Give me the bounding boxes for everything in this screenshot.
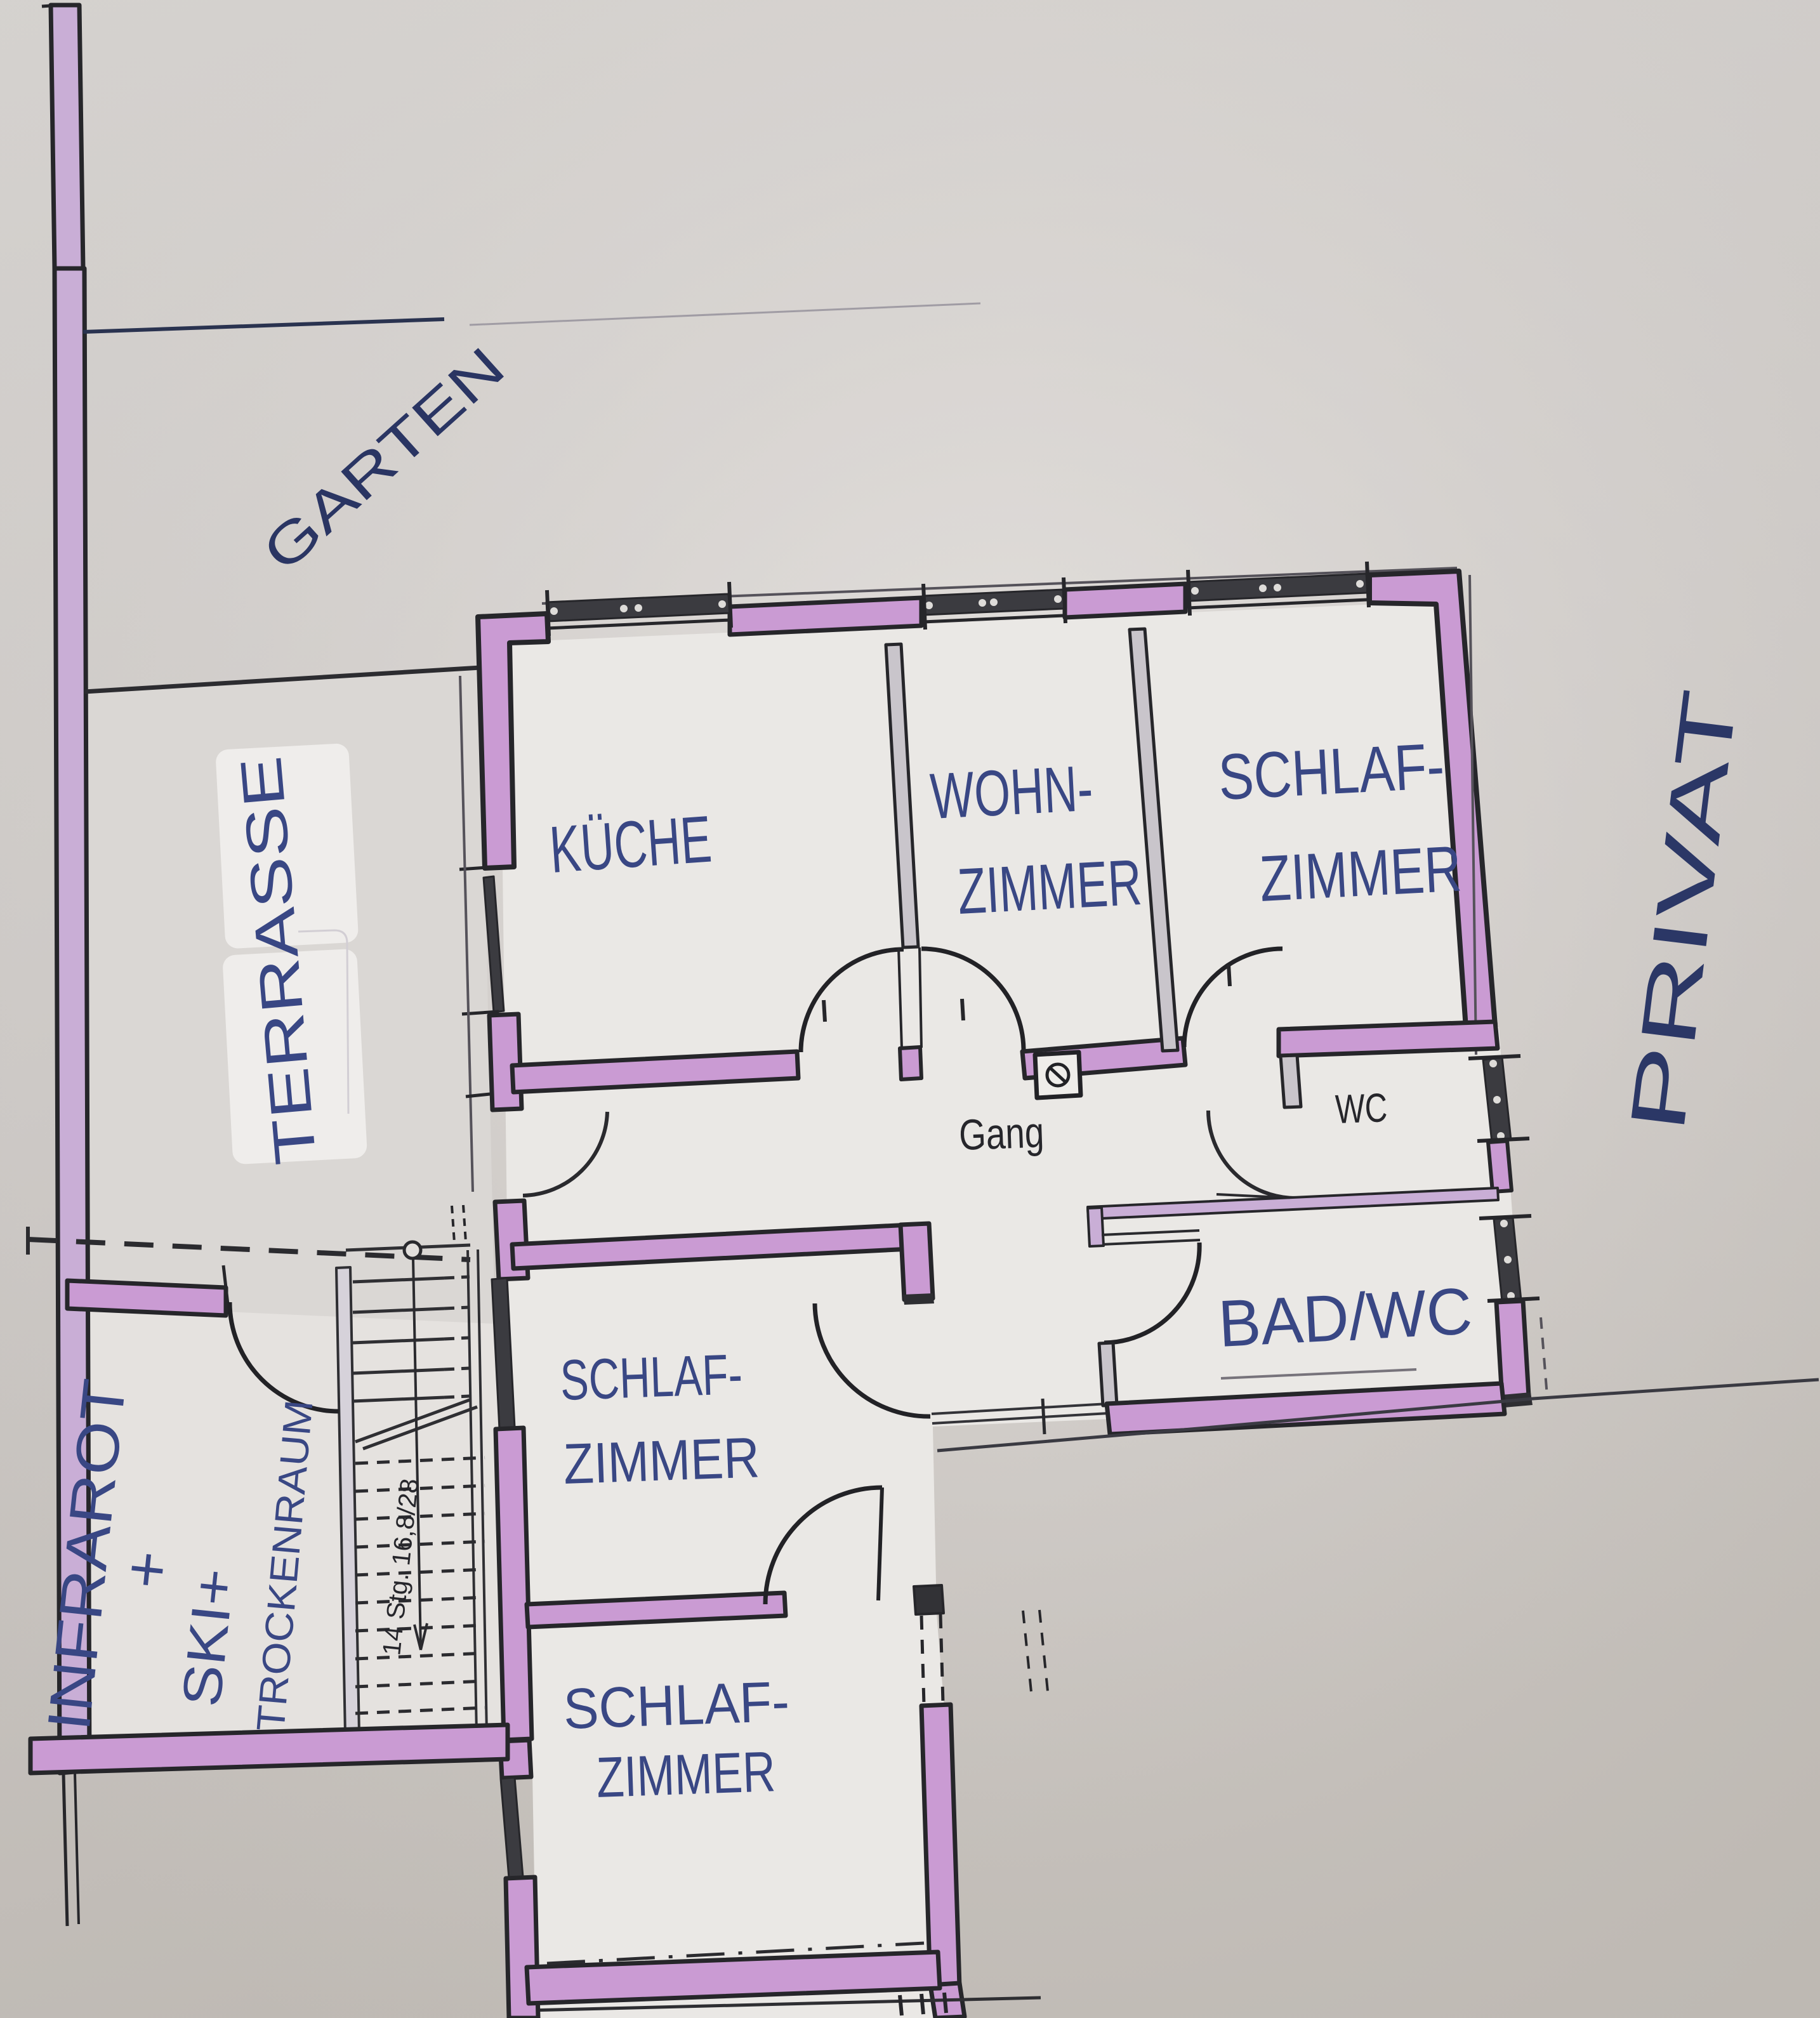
svg-text:WC: WC bbox=[1335, 1085, 1388, 1132]
svg-text:BAD/WC: BAD/WC bbox=[1217, 1274, 1474, 1361]
svg-text:ZIMMER: ZIMMER bbox=[1258, 832, 1463, 914]
svg-text:ZIMMER: ZIMMER bbox=[956, 846, 1144, 928]
svg-text:KÜCHE: KÜCHE bbox=[548, 802, 714, 887]
svg-text:ZIMMER: ZIMMER bbox=[562, 1426, 760, 1496]
svg-text:SCHLAF-: SCHLAF- bbox=[562, 1670, 790, 1741]
svg-text:SCHLAF-: SCHLAF- bbox=[559, 1343, 743, 1413]
svg-text:WOHN-: WOHN- bbox=[928, 752, 1095, 833]
svg-text:SCHLAF-: SCHLAF- bbox=[1217, 729, 1446, 813]
svg-text:ZIMMER: ZIMMER bbox=[595, 1740, 776, 1810]
svg-text:Gang: Gang bbox=[958, 1108, 1045, 1159]
svg-text:+: + bbox=[109, 1548, 183, 1592]
